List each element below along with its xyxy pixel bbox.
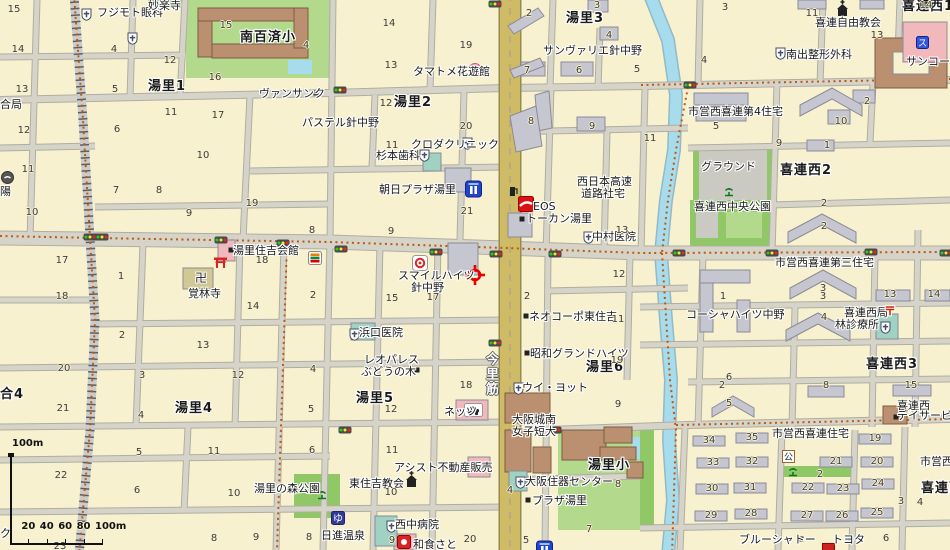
poi-label: 湯里の森公園: [254, 483, 320, 494]
block-number: 19: [460, 41, 473, 51]
block-number: 28: [745, 509, 758, 519]
block-number: 21: [461, 207, 474, 217]
block-number: 9: [253, 533, 259, 543]
poi-label: コーシャハイツ中野: [686, 309, 785, 320]
block-number: 11: [208, 447, 221, 457]
poi-label: 南出整形外科: [786, 49, 852, 60]
block-number: 32: [746, 457, 759, 467]
block-number: 21: [57, 404, 70, 414]
block-number: 8: [306, 533, 312, 543]
poi-label: トーカン湯里: [526, 213, 592, 224]
block-number: 8: [156, 186, 162, 196]
block-number: 5: [726, 399, 732, 409]
block-number: 13: [385, 61, 398, 71]
poi-label: 浜口医院: [359, 327, 403, 338]
hospital-icon: [880, 321, 891, 334]
block-number: 17: [212, 111, 225, 121]
block-number: 17: [427, 293, 440, 303]
block-number: 2: [526, 9, 532, 19]
poi-label: トヨタ: [832, 534, 865, 545]
block-number: 13: [871, 31, 884, 41]
poi-label: サンヴァリエ針中野: [543, 45, 642, 56]
poi-label: 和食さと: [413, 539, 457, 550]
poi-label: ウイ・ヨット: [522, 382, 588, 393]
map-overlay: スゆ公湯里1湯里2湯里3湯里4湯里5湯里6喜連西1喜連西2喜連西3喜連西南百済小…: [0, 0, 950, 550]
block-number: 4: [303, 41, 309, 51]
block-number: 9: [776, 139, 782, 149]
landmark-blue-icon: [465, 180, 482, 198]
block-number: 9: [615, 400, 621, 410]
block-number: 9: [388, 227, 394, 237]
block-number: 15: [905, 381, 918, 391]
block-number: 29: [705, 511, 718, 521]
block-number: 12: [232, 371, 245, 381]
scale-tick-label: 60: [58, 521, 72, 532]
block-number: 19: [611, 356, 624, 366]
traffic-light-icon: [549, 251, 562, 258]
landmark-blue-icon: [536, 540, 553, 550]
block-number: 11: [165, 108, 178, 118]
block-number: 8: [309, 226, 315, 236]
scale-bar-vertical-label: 100m: [12, 438, 43, 449]
traffic-light-icon: [489, 340, 502, 347]
traffic-light-icon: [940, 250, 950, 257]
block-number: 10: [385, 488, 398, 498]
district-label: 喜連西: [921, 482, 950, 495]
block-number: 19: [869, 434, 882, 444]
block-number: 5: [308, 405, 314, 415]
block-number: 4: [701, 56, 707, 66]
block-number: 11: [806, 9, 819, 19]
block-number: 27: [801, 511, 814, 521]
district-label: 湯里1: [148, 80, 186, 93]
block-number: 3: [820, 292, 826, 302]
block-number: 6: [309, 446, 315, 456]
park-icon: 公: [782, 450, 795, 463]
block-number: 6: [134, 486, 140, 496]
block-number: 5: [136, 448, 142, 458]
poi-label: ネオコーポ東住吉: [529, 311, 617, 322]
traffic-light-icon: [430, 249, 443, 256]
hospital-icon: [775, 47, 786, 60]
block-number: 8: [211, 534, 217, 544]
block-number: 14: [928, 290, 941, 300]
block-number: 1: [118, 272, 124, 282]
block-number: 4: [606, 31, 612, 41]
traffic-light-icon: [84, 234, 109, 241]
poi-label: 西中病院: [395, 519, 439, 530]
block-number: 3: [898, 497, 904, 507]
church-icon: [834, 0, 851, 17]
block-number: 15: [8, 5, 21, 15]
fountain-icon: [787, 466, 799, 478]
scale-bar: 100m 20406080100m: [0, 445, 120, 545]
block-number: 2: [821, 199, 827, 209]
poi-label: 覚林寺: [188, 288, 221, 299]
block-number: 1: [824, 141, 830, 151]
poi-label: 杉本歯科: [376, 150, 420, 161]
block-number: 6: [726, 373, 732, 383]
poi-label: 陽: [0, 186, 11, 197]
block-number: 5: [634, 65, 640, 75]
fountain-icon: [723, 186, 735, 198]
traffic-light-icon: [865, 249, 878, 256]
svg-text:ス: ス: [918, 39, 927, 49]
poi-label: 女子短大: [512, 426, 556, 437]
poi-label: グラウンド: [701, 161, 756, 172]
gas-pump-icon: [509, 185, 518, 197]
block-number: 1: [720, 292, 726, 302]
district-label: 喜連西3: [866, 358, 918, 371]
poi-label: 市営西喜連第4住宅: [688, 106, 783, 117]
block-number: 4: [310, 365, 316, 375]
scale-tick: [65, 539, 66, 545]
poi-label: 市営西喜連住宅: [772, 428, 849, 439]
poi-label: レオパレス: [364, 354, 419, 365]
block-number: 12: [385, 405, 398, 415]
building-marker-icon: [525, 497, 531, 503]
block-number: 33: [707, 458, 720, 468]
poi-label: 大阪城南: [512, 414, 556, 425]
block-number: 13: [884, 290, 897, 300]
scale-tick: [84, 539, 85, 545]
poi-label: 西日本高速: [577, 176, 632, 187]
block-number: 2: [524, 292, 530, 302]
poi-label: タマトメ花遊館: [413, 66, 490, 77]
block-number: 10: [228, 489, 241, 499]
scale-tick: [102, 539, 103, 545]
block-number: 25: [871, 508, 884, 518]
poi-label: 道路社宅: [581, 188, 625, 199]
poi-label: アシスト不動産販売: [394, 462, 493, 473]
district-label: 合4: [0, 388, 24, 401]
block-number: 4: [507, 486, 513, 496]
district-label: 湯里2: [394, 96, 432, 109]
traffic-light-icon: [339, 427, 352, 434]
poi-label: 大阪住器センター: [525, 476, 613, 487]
scale-tick-label: 80: [77, 521, 91, 532]
block-number: 12: [613, 270, 626, 280]
bathhouse-icon: [1, 171, 14, 184]
block-number: 24: [872, 479, 885, 489]
poi-label: パステル針中野: [302, 117, 379, 128]
block-number: 4: [821, 313, 827, 323]
block-number: 18: [56, 292, 69, 302]
district-label: 湯里4: [175, 402, 213, 415]
block-number: 15: [386, 294, 399, 304]
poi-label: 妙楽寺: [148, 0, 181, 11]
block-number: 7: [113, 186, 119, 196]
poi-label: 合局: [0, 99, 22, 110]
block-number: 6: [883, 534, 889, 544]
supermarket-icon: ス: [916, 36, 929, 49]
district-label: 南百済小: [240, 31, 296, 44]
block-number: 2: [864, 97, 870, 107]
restaurant-icon: [397, 535, 411, 549]
poi-label: スマイルハイツ: [398, 270, 474, 281]
poi-label: 喜連西局: [844, 307, 888, 318]
block-number: 19: [246, 199, 259, 209]
poi-label: 喜連自由教会: [815, 17, 881, 28]
block-number: 8: [615, 480, 621, 490]
poi-label: 喜連西中央公園: [694, 201, 771, 212]
block-number: 18: [256, 256, 269, 266]
poi-label: 林診療所: [835, 319, 879, 330]
block-number: 35: [746, 433, 759, 443]
block-number: 2: [310, 291, 316, 301]
poi-label: デイサービス: [897, 410, 950, 421]
traffic-light-icon: [490, 251, 503, 258]
poi-label: 中村医院: [592, 231, 636, 242]
poi-label: プラザ湯里: [532, 495, 587, 506]
poi-label: 日進温泉: [321, 530, 365, 541]
hospital-icon: [127, 32, 138, 45]
block-number: 9: [186, 209, 192, 219]
block-number: 11: [22, 165, 35, 175]
block-number: 12: [164, 56, 177, 66]
block-number: 14: [12, 45, 25, 55]
onsen-icon: ゆ: [331, 511, 345, 525]
poi-label: ネッツ: [444, 406, 477, 417]
traffic-light-icon: [489, 1, 502, 8]
torii-gate-icon: [214, 256, 227, 268]
block-number: 11: [386, 141, 399, 151]
block-number: 20: [460, 122, 473, 132]
block-number: 6: [114, 125, 120, 135]
block-number: 5: [112, 85, 118, 95]
block-number: 12: [380, 99, 393, 109]
block-number: 17: [56, 256, 69, 266]
block-number: 23: [837, 484, 850, 494]
block-number: 10: [26, 208, 39, 218]
poi-label: クロダクリニック: [411, 139, 499, 150]
block-number: 21: [830, 457, 843, 467]
traffic-light-icon: [684, 82, 697, 89]
block-number: 20: [464, 535, 477, 545]
block-number: 14: [920, 1, 933, 11]
block-number: 13: [197, 341, 210, 351]
block-number: 3: [139, 371, 145, 381]
block-number: 12: [18, 126, 31, 136]
block-number: 9: [589, 122, 595, 132]
block-number: 7: [586, 525, 592, 535]
block-number: 20: [871, 457, 884, 467]
block-number: 2: [719, 381, 725, 391]
block-number: 9: [389, 536, 395, 546]
poi-label: 市営西喜連第三住宅: [775, 257, 874, 268]
block-number: 8: [528, 117, 534, 127]
poi-label: 市営西喜: [920, 456, 950, 467]
block-number: 11: [644, 134, 657, 144]
poi-label: ブルーシャトー: [739, 534, 816, 545]
district-label: 湯里小: [588, 459, 630, 472]
traffic-light-icon: [215, 237, 228, 244]
block-number: 22: [802, 483, 815, 493]
district-label: 湯里3: [566, 12, 604, 25]
poi-label: 〒: [884, 305, 896, 317]
block-number: 30: [706, 484, 719, 494]
poi-label: サンコー: [906, 56, 950, 67]
block-number: 14: [383, 19, 396, 29]
block-number: 20: [58, 364, 71, 374]
district-label: 喜連西2: [780, 164, 832, 177]
svg-text:公: 公: [784, 452, 793, 463]
seven-eleven-icon: [308, 251, 322, 265]
block-number: 31: [744, 483, 757, 493]
block-number: 4: [917, 498, 923, 508]
scale-tick: [28, 539, 29, 545]
block-number: 13: [616, 226, 629, 236]
block-number: 7: [524, 66, 530, 76]
block-number: 13: [16, 85, 29, 95]
block-number: 10: [197, 151, 210, 161]
scale-tick-label: 40: [40, 521, 54, 532]
eneos-gas-icon: [518, 196, 534, 212]
road-name-label: 今里筋: [484, 352, 497, 397]
poi-label: 朝日プラザ湯里: [379, 184, 456, 195]
hospital-icon: [81, 8, 92, 21]
traffic-light-icon: [334, 87, 347, 94]
block-number: 5: [523, 536, 529, 546]
scale-bar-arrow: [8, 453, 14, 457]
poi-label: ぶどうの木: [361, 366, 416, 377]
block-number: 14: [247, 302, 260, 312]
scale-tick: [47, 539, 48, 545]
poi-label: 卍: [195, 272, 207, 284]
block-number: 2: [817, 470, 823, 480]
block-number: 3: [722, 3, 728, 13]
traffic-light-icon: [673, 250, 686, 257]
traffic-light-icon: [335, 246, 348, 253]
block-number: 15: [220, 21, 233, 31]
block-number: 2: [821, 222, 827, 232]
block-number: 2: [119, 331, 125, 341]
block-number: 26: [836, 511, 849, 521]
block-number: 4: [111, 45, 117, 55]
scale-tick-label: 20: [21, 521, 35, 532]
svg-text:ゆ: ゆ: [333, 513, 343, 525]
block-number: 16: [209, 73, 222, 83]
scale-bar-horizontal: [10, 543, 102, 545]
block-number: 8: [823, 381, 829, 391]
poi-label: ヴァンサンク: [259, 88, 325, 99]
block-number: 5: [713, 122, 719, 132]
block-number: 11: [386, 446, 399, 456]
scale-bar-vertical: [10, 457, 12, 545]
building-marker-icon: [519, 216, 525, 222]
block-number: 4: [138, 411, 144, 421]
poi-label: EOS: [533, 201, 556, 212]
block-number: 34: [703, 436, 716, 446]
block-number: 11: [612, 315, 625, 325]
block-number: 10: [835, 117, 848, 127]
block-number: 3: [594, 1, 600, 11]
map-viewport[interactable]: スゆ公湯里1湯里2湯里3湯里4湯里5湯里6喜連西1喜連西2喜連西3喜連西南百済小…: [0, 0, 950, 550]
block-number: 6: [576, 66, 582, 76]
scale-tick-label: 100m: [95, 521, 126, 532]
block-number: 18: [460, 381, 473, 391]
